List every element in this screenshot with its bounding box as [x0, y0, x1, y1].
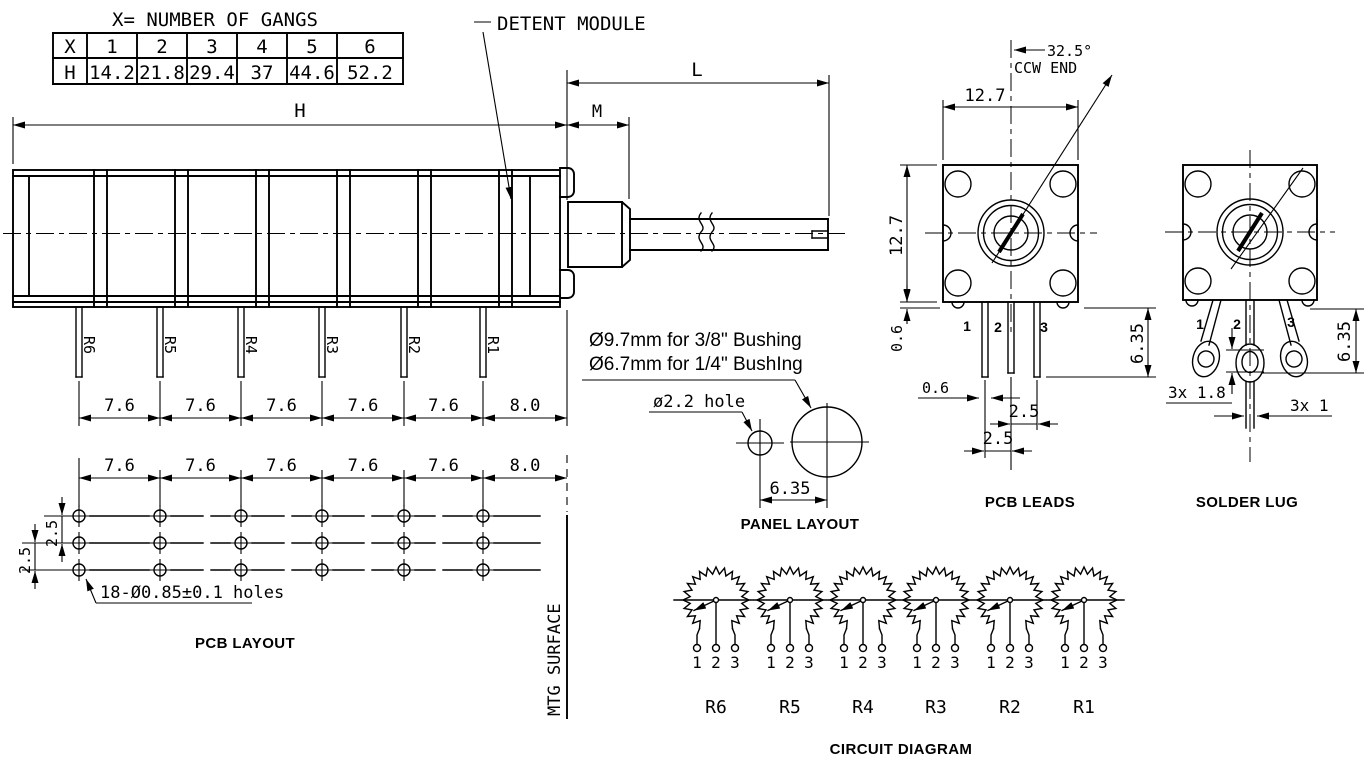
potentiometer-symbol: 123R3: [903, 567, 969, 718]
terminal-number: 3: [1024, 653, 1034, 672]
terminal-circle: [860, 645, 867, 652]
engineering-drawing-page: X= NUMBER OF GANGS X 1 2 3 4 5 6 H 14.2 …: [0, 0, 1372, 769]
gang-pin-label: R2: [405, 336, 423, 354]
potentiometer-symbol: 123R4: [830, 567, 896, 718]
terminal-circle: [768, 645, 775, 652]
terminal-circle: [914, 645, 921, 652]
table-cell: 21.8: [139, 62, 185, 84]
terminal-number: 1: [839, 653, 849, 672]
terminal-circle: [1007, 645, 1014, 652]
pitch-dim-label: 7.6: [266, 396, 297, 416]
table-row-x-header: X: [64, 36, 76, 58]
terminal-circle: [1081, 645, 1088, 652]
detent-module-callout: DETENT MODULE: [497, 13, 646, 35]
wiper-arrow: [694, 600, 716, 611]
terminal-number: 3: [804, 653, 814, 672]
pcb-layout-label: PCB LAYOUT: [195, 635, 295, 652]
pitch-dim-label: 7.6: [266, 456, 297, 476]
resistor-name: R1: [1073, 697, 1095, 718]
gang-pins: R6R5R4R3R2R1: [76, 307, 502, 377]
pcb-layout-view: 7.67.67.67.67.68.0 2.5 2.5 18-Ø0.85±0.1 …: [16, 455, 567, 718]
terminal-circle: [952, 645, 959, 652]
dim-m-label: M: [592, 102, 602, 122]
ccw-end-label: CCW END: [1014, 59, 1077, 77]
terminal-circle: [713, 645, 720, 652]
terminal-circle: [694, 645, 701, 652]
resistor-name: R3: [925, 697, 947, 718]
ccw-end-indicator-line: [992, 75, 1112, 263]
pcb-leads-label: PCB LEADS: [985, 494, 1075, 511]
gang-pin-label: R4: [242, 336, 260, 354]
potentiometer-symbol: 123R1: [1051, 567, 1117, 718]
solder-lug-view: 1 2 3 3x 1.8 6.35 3x 1 SOLDER LUG: [1165, 150, 1364, 511]
terminal-number: 1: [692, 653, 702, 672]
pcb-pitch-dims: 7.67.67.67.67.68.0: [79, 456, 567, 507]
mount-tab-bottom: [560, 270, 574, 298]
pitch-dim-label: 7.6: [348, 396, 379, 416]
lug-hole-dim: 3x 1.8: [1168, 383, 1226, 402]
lug-width-dim: 3x 1: [1290, 396, 1329, 415]
gang-pin-label: R5: [161, 336, 179, 354]
terminal-number: 2: [711, 653, 721, 672]
pitch-dim-label: 7.6: [185, 396, 216, 416]
resistor-name: R6: [705, 697, 727, 718]
table-cell: 3: [206, 36, 217, 58]
holes-note-leader: [86, 579, 96, 603]
table-row-h-header: H: [64, 62, 75, 84]
pcb-row-dim-label: 2.5: [43, 520, 61, 547]
gang-pin-label: R3: [323, 336, 341, 354]
angle-label: 32.5°: [1047, 42, 1092, 60]
pcb-holes: [68, 505, 540, 581]
potentiometer-symbol: 123R5: [757, 567, 823, 718]
pitch-dim-label: 8.0: [510, 456, 541, 476]
table-cell: 2: [156, 36, 167, 58]
terminal-circle: [732, 645, 739, 652]
terminal-number: 3: [877, 653, 887, 672]
terminal-number: 1: [766, 653, 776, 672]
resistor-name: R5: [779, 697, 801, 718]
circuit-diagram: 123R6123R5123R4123R3123R2123R1 CIRCUIT D…: [674, 567, 1124, 758]
terminal-number: 2: [1079, 653, 1089, 672]
terminal-circle: [787, 645, 794, 652]
holes-note: 18-Ø0.85±0.1 holes: [100, 583, 284, 603]
wiper-arrow: [768, 600, 790, 611]
pitch-dim-label: 7.6: [348, 456, 379, 476]
pitch-dim-label: 7.6: [428, 396, 459, 416]
table-cell: 14.2: [89, 62, 135, 84]
terminal-number: 3: [1098, 653, 1108, 672]
resistor-name: R2: [999, 697, 1021, 718]
pitch-dim-label: 7.6: [104, 456, 135, 476]
pitch-dim-label: 7.6: [185, 456, 216, 476]
terminal-circle: [1026, 645, 1033, 652]
pitch-dim-label: 7.6: [104, 396, 135, 416]
terminal-circle: [879, 645, 886, 652]
wiper-arrow: [988, 600, 1010, 611]
terminal-number: 2: [1005, 653, 1015, 672]
shaft: [630, 213, 828, 251]
pin-number: 2: [994, 319, 1002, 335]
mtg-surface-label: MTG SURFACE: [545, 603, 565, 716]
terminal-circle: [933, 645, 940, 652]
pin-width-dim: 0.6: [922, 379, 949, 397]
table-cell: 6: [364, 36, 375, 58]
pcb-leads-height-dim: 12.7: [887, 215, 907, 256]
wiper-arrow: [841, 600, 863, 611]
hole-note-leader: [742, 412, 752, 431]
terminal-number: 1: [1060, 653, 1070, 672]
panel-dim-label: 6.35: [770, 479, 811, 499]
wiper-arrow: [1062, 600, 1084, 611]
dim-l-label: L: [691, 59, 702, 81]
pin-length-dim: 6.35: [1128, 323, 1148, 364]
table-cell: 5: [306, 36, 317, 58]
gangs-table-title: X= NUMBER OF GANGS: [112, 9, 318, 31]
terminal-circle: [988, 645, 995, 652]
lug-length-dim: 6.35: [1335, 321, 1355, 362]
table-cell: 37: [251, 62, 274, 84]
pin-number: 3: [1040, 319, 1048, 335]
terminal-number: 1: [912, 653, 922, 672]
pcb-leads-view: 32.5° CCW END 12.7 12.7 0.6 1 2 3 6.35 0…: [887, 40, 1156, 511]
circuit-diagram-label: CIRCUIT DIAGRAM: [830, 741, 973, 758]
solder-lug-label: SOLDER LUG: [1196, 494, 1298, 511]
terminal-number: 2: [858, 653, 868, 672]
potentiometer-symbol: 123R2: [977, 567, 1043, 718]
pitch-dim-label: 8.0: [510, 396, 541, 416]
panel-hole-note: ø2.2 hole: [653, 392, 745, 412]
table-cell: 1: [106, 36, 117, 58]
terminal-number: 3: [950, 653, 960, 672]
terminal-circle: [841, 645, 848, 652]
pcb-leads-width-dim: 12.7: [965, 86, 1006, 106]
bushing: [568, 202, 630, 267]
pin-number: 2: [1233, 316, 1241, 332]
bushing-note-line1: Ø9.7mm for 3/8" Bushing: [589, 330, 802, 351]
terminal-circle: [806, 645, 813, 652]
panel-layout-label: PANEL LAYOUT: [741, 516, 860, 533]
callout-leader-line: [483, 32, 511, 199]
pin-number: 3: [1287, 314, 1295, 330]
terminal-circle: [1062, 645, 1069, 652]
table-cell: 4: [256, 36, 267, 58]
pin-number: 1: [963, 318, 971, 334]
terminal-number: 2: [931, 653, 941, 672]
terminal-circle: [1100, 645, 1107, 652]
pin-pitch-dim: 2.5: [983, 429, 1014, 449]
table-cell: 44.6: [289, 62, 335, 84]
table-cell: 52.2: [347, 62, 393, 84]
bushing-note-leader: [795, 380, 811, 408]
terminal-number: 2: [785, 653, 795, 672]
wiper-arrow: [914, 600, 936, 611]
pin-number: 1: [1196, 316, 1204, 332]
gang-pin-label: R6: [80, 336, 98, 354]
panel-layout-view: Ø9.7mm for 3/8" Bushing Ø6.7mm for 1/4" …: [582, 330, 869, 533]
dim-h-label: H: [294, 100, 305, 122]
terminal-number: 1: [986, 653, 996, 672]
pin-pitch-dim: 2.5: [1009, 402, 1040, 422]
gang-pitch-dims: 7.67.67.67.67.68.0: [79, 310, 567, 426]
gang-body: [13, 168, 574, 307]
gangs-table: X= NUMBER OF GANGS X 1 2 3 4 5 6 H 14.2 …: [53, 9, 403, 84]
pitch-dim-label: 7.6: [428, 456, 459, 476]
gang-pin-label: R1: [484, 336, 502, 354]
resistor-name: R4: [852, 697, 874, 718]
potentiometer-symbol: 123R6: [683, 567, 749, 718]
terminal-number: 3: [730, 653, 740, 672]
pcb-row-dim-label: 2.5: [16, 547, 34, 574]
table-cell: 29.4: [189, 62, 235, 84]
standoff-dim: 0.6: [888, 325, 906, 352]
bushing-note-line2: Ø6.7mm for 1/4" BushIng: [589, 354, 803, 375]
